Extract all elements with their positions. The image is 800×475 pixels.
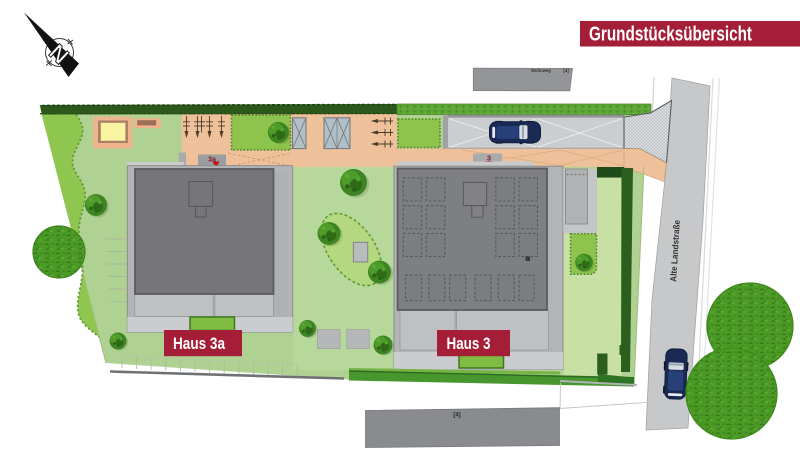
svg-text:Grundstücksübersicht: Grundstücksübersicht (589, 24, 752, 46)
svg-text:Haus 3: Haus 3 (447, 335, 491, 353)
svg-text:[4]: [4] (563, 68, 569, 73)
svg-text:Wohnweg: Wohnweg (531, 68, 551, 73)
svg-text:Haus 3a: Haus 3a (173, 335, 226, 353)
svg-text:[4]: [4] (453, 413, 460, 419)
